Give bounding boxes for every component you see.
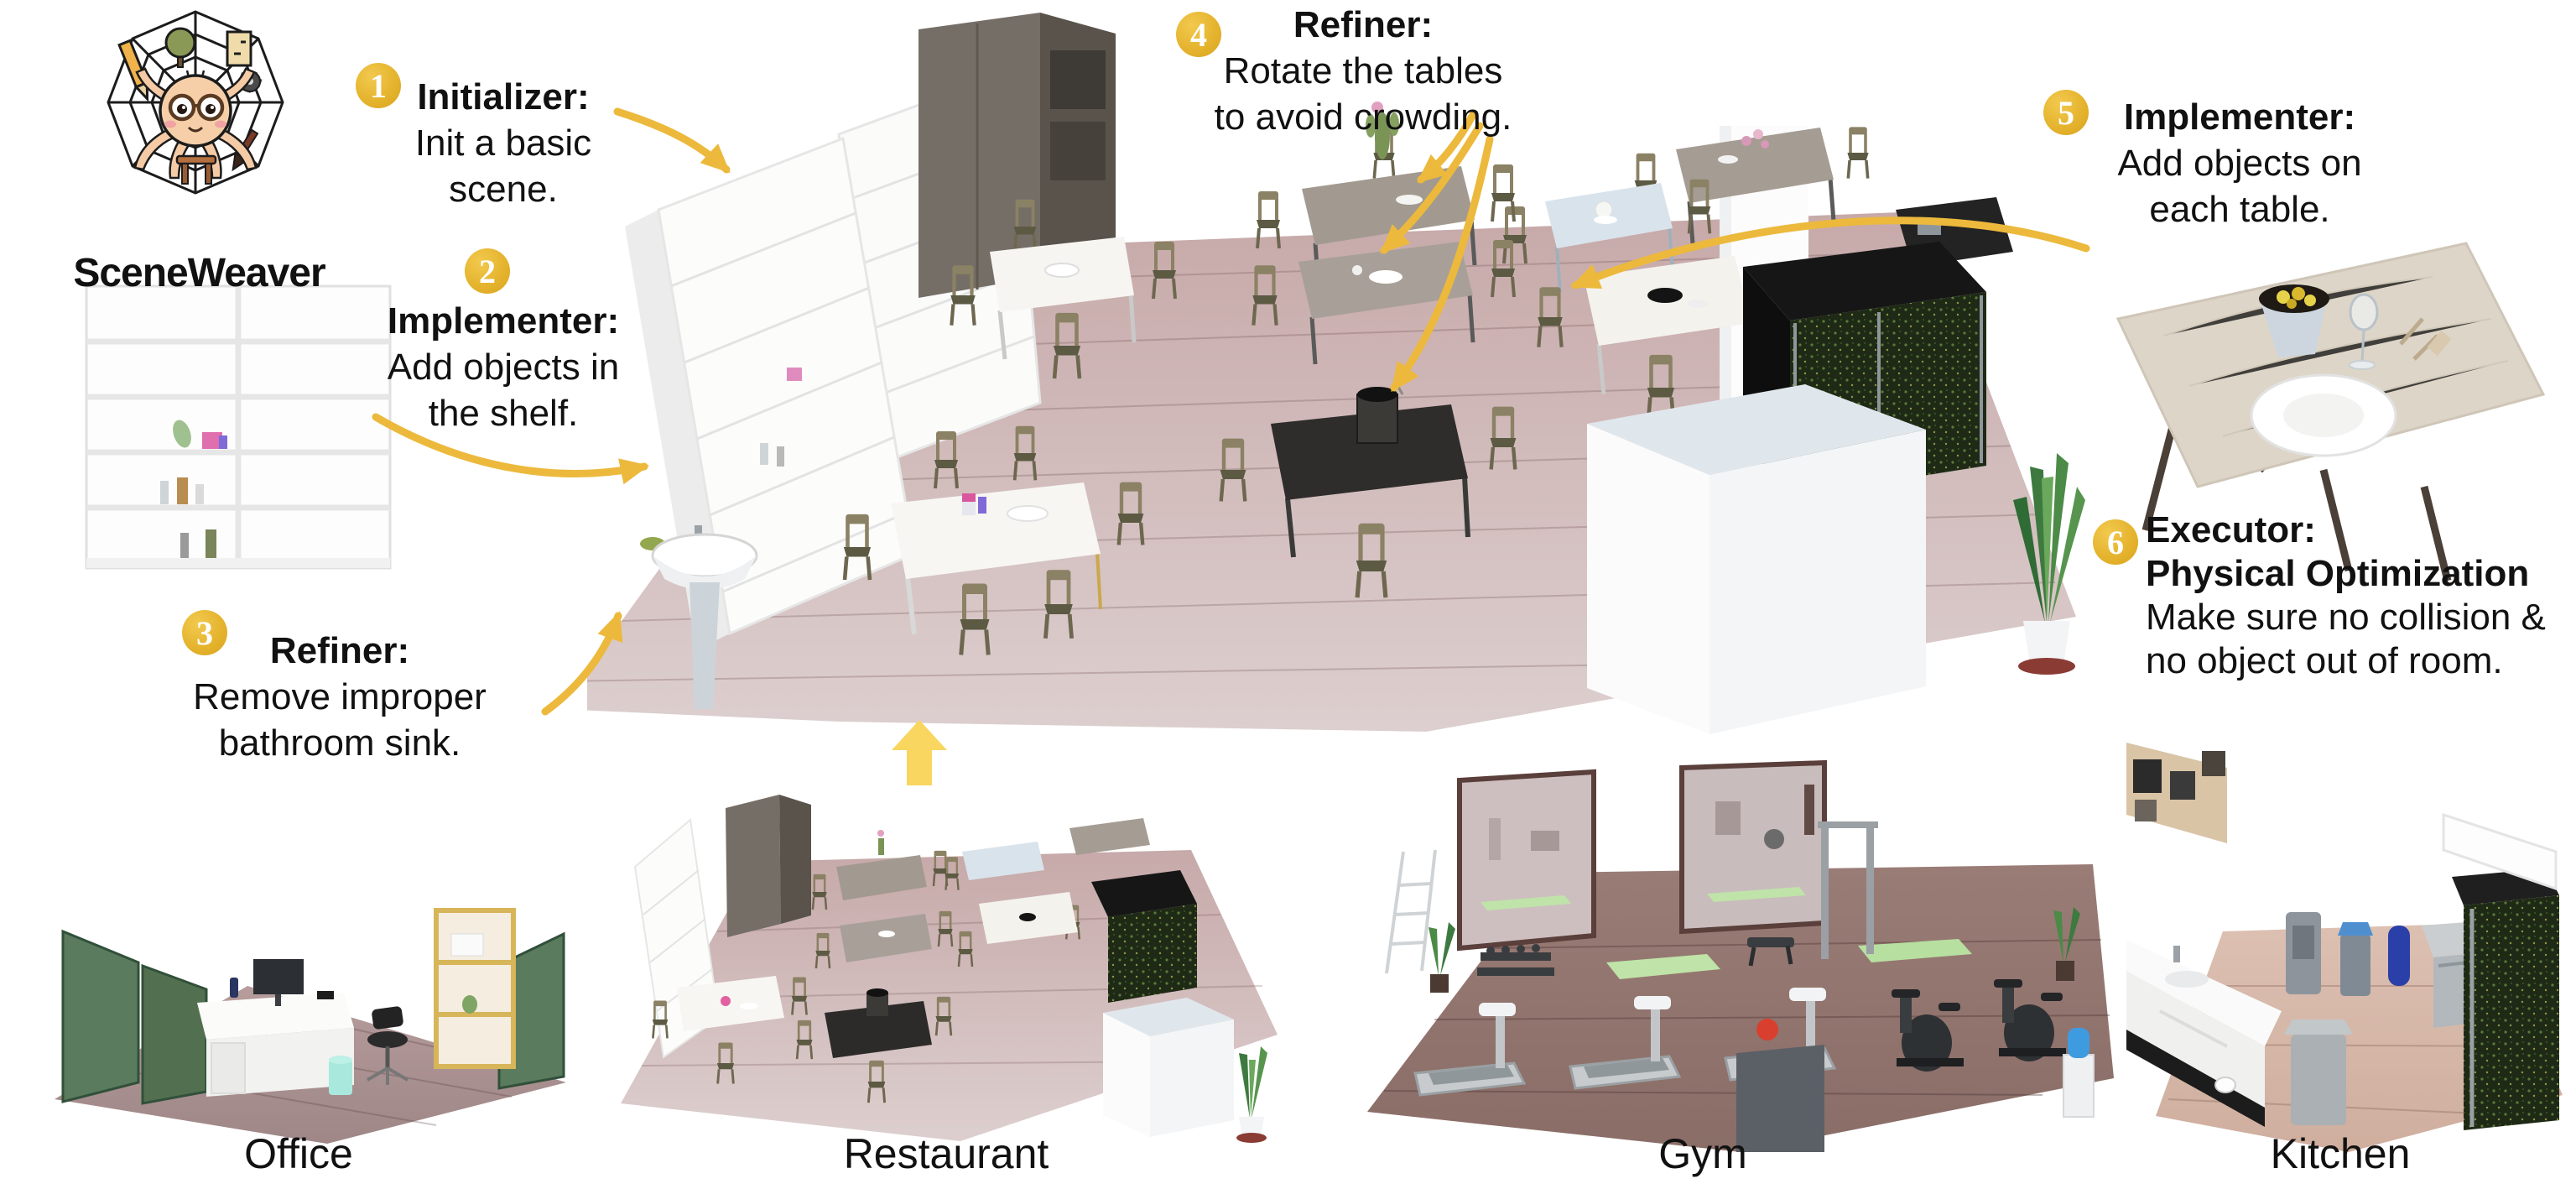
kitchen-scene [2126, 734, 2576, 1154]
small-wardrobe [726, 795, 811, 937]
step-4-title: Refiner: [1200, 2, 1527, 48]
small-plant [1236, 1046, 1267, 1143]
fridge [2452, 868, 2559, 1130]
step-6-badge: 6 [2093, 519, 2138, 565]
label-office: Office [194, 1129, 403, 1178]
wall-bars [1387, 850, 1435, 973]
label-restaurant: Restaurant [799, 1129, 1093, 1178]
step-5-line2: each table. [2101, 186, 2378, 232]
step-5-title: Implementer: [2101, 94, 2378, 140]
label-kitchen: Kitchen [2214, 1129, 2466, 1178]
step-3-badge: 3 [182, 610, 227, 655]
step-4-line1: Rotate the tables [1200, 48, 1527, 94]
step-3-line1: Remove improper [172, 674, 507, 720]
water-cooler [2063, 1028, 2094, 1117]
chalkboards-left [63, 931, 206, 1103]
step-2-line1: Add objects in [369, 344, 637, 390]
logo-title: SceneWeaver [50, 250, 348, 296]
plate [2251, 375, 2396, 456]
step-2-annotation: Implementer: Add objects in the shelf. [369, 298, 637, 436]
step-6-subtitle: Physical Optimization [2146, 552, 2565, 596]
wall-cabinets [2126, 743, 2227, 843]
step-6-title: Executor: [2146, 508, 2565, 552]
exercise-ball [1756, 1019, 1778, 1040]
step-6-line2: no object out of room. [2146, 639, 2565, 683]
step-3-annotation: Refiner: Remove improper bathroom sink. [172, 628, 507, 766]
step-6-line1: Make sure no collision & [2146, 596, 2565, 639]
step-1-line1: Init a basic [377, 120, 629, 166]
gym-mirror-right [1682, 763, 1824, 931]
kettle [2215, 1077, 2235, 1093]
step-2-badge: 2 [465, 248, 510, 294]
yellow-bookshelf [436, 910, 513, 1066]
small-white-box [1103, 998, 1234, 1137]
step-1-line2: scene. [377, 166, 629, 212]
spider-web-logo-icon [55, 3, 344, 205]
step-4-line2: to avoid crowding. [1200, 94, 1527, 140]
gym-scene [1355, 751, 2135, 1154]
logo-tree-icon [166, 29, 195, 67]
step-5-badge: 5 [2043, 90, 2089, 135]
label-gym: Gym [1598, 1129, 1808, 1178]
spider-body [160, 69, 231, 146]
step-5-annotation: Implementer: Add objects on each table. [2101, 94, 2378, 232]
gym-mirror-left [1460, 772, 1594, 948]
step-1-badge: 1 [356, 63, 401, 108]
restaurant-scene-small [600, 768, 1296, 1145]
shelf-inset-illustration [80, 281, 398, 583]
step-2-title: Implementer: [369, 298, 637, 344]
office-scene [42, 885, 579, 1145]
step-6-annotation: Executor: Physical Optimization Make sur… [2146, 508, 2565, 683]
trash-bin [329, 1056, 352, 1095]
step-2-line2: the shelf. [369, 390, 637, 436]
step-5-line1: Add objects on [2101, 140, 2378, 186]
step-3-line2: bathroom sink. [172, 720, 507, 766]
step-1-annotation: Initializer: Init a basic scene. [377, 74, 629, 212]
white-box [1587, 384, 1926, 734]
step-4-badge: 4 [1176, 12, 1221, 57]
step-1-title: Initializer: [377, 74, 629, 120]
step-4-annotation: Refiner: Rotate the tables to avoid crow… [1200, 2, 1527, 140]
logo-door-icon [227, 32, 251, 65]
logo-pencil-icon [119, 40, 153, 101]
